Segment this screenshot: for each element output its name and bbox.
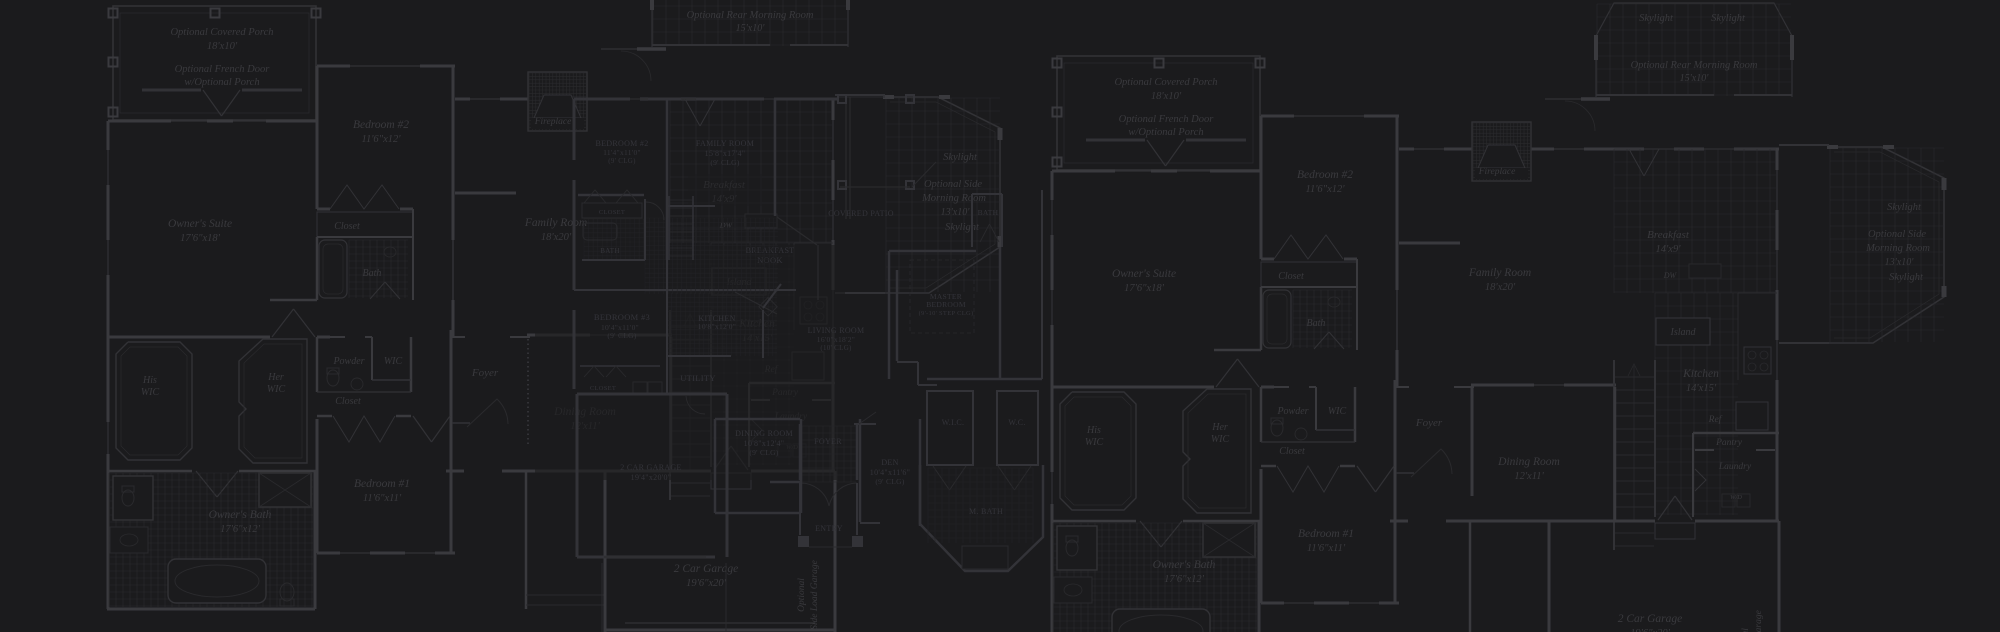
svg-text:Bath: Bath bbox=[1307, 318, 1326, 329]
svg-text:Laundry: Laundry bbox=[1718, 462, 1752, 472]
svg-text:WIC: WIC bbox=[267, 384, 286, 395]
svg-text:(10' CLG): (10' CLG) bbox=[820, 344, 852, 352]
svg-text:UTILITY: UTILITY bbox=[680, 373, 716, 383]
svg-text:11'4"x11'0": 11'4"x11'0" bbox=[603, 148, 641, 157]
svg-text:BEDROOM #2: BEDROOM #2 bbox=[595, 139, 648, 148]
svg-text:Her: Her bbox=[1211, 422, 1228, 433]
svg-text:DINING ROOM: DINING ROOM bbox=[735, 429, 793, 438]
svg-text:13'x10': 13'x10' bbox=[941, 207, 971, 218]
svg-text:Optional French Door: Optional French Door bbox=[1119, 114, 1215, 125]
svg-text:His: His bbox=[142, 375, 157, 386]
svg-text:(9' CLG): (9' CLG) bbox=[607, 331, 637, 340]
svg-text:Dining Room: Dining Room bbox=[1497, 456, 1560, 468]
svg-text:Powder: Powder bbox=[332, 356, 364, 367]
svg-text:13'x10': 13'x10' bbox=[1885, 257, 1915, 268]
svg-text:Powder: Powder bbox=[1276, 406, 1308, 417]
svg-text:15'x10': 15'x10' bbox=[736, 23, 766, 34]
svg-text:BEDROOM #3: BEDROOM #3 bbox=[594, 312, 650, 322]
svg-text:19'6"x20': 19'6"x20' bbox=[1630, 628, 1671, 632]
svg-text:10'8"x12'0": 10'8"x12'0" bbox=[698, 322, 736, 331]
svg-text:Ref: Ref bbox=[1708, 414, 1723, 425]
svg-text:(9' CLG): (9' CLG) bbox=[608, 157, 636, 165]
svg-text:Her: Her bbox=[267, 372, 284, 383]
svg-text:COVERED PATIO: COVERED PATIO bbox=[828, 209, 894, 218]
svg-text:Morning Room: Morning Room bbox=[1865, 243, 1930, 254]
svg-text:Optional Rear Morning Room: Optional Rear Morning Room bbox=[687, 10, 814, 21]
svg-text:Kitchen: Kitchen bbox=[1682, 368, 1719, 380]
svg-text:10'4"x11'6": 10'4"x11'6" bbox=[870, 468, 910, 477]
svg-text:Closet: Closet bbox=[1279, 446, 1305, 457]
svg-text:Skylight: Skylight bbox=[1711, 13, 1746, 24]
svg-text:11'6"x11': 11'6"x11' bbox=[363, 493, 402, 504]
svg-text:11'6"x12': 11'6"x12' bbox=[361, 134, 401, 145]
svg-text:Skylight: Skylight bbox=[1639, 13, 1674, 24]
svg-text:w/Optional Porch: w/Optional Porch bbox=[1128, 127, 1203, 138]
svg-text:17'6"x12': 17'6"x12' bbox=[220, 524, 261, 535]
svg-text:Fireplace: Fireplace bbox=[534, 117, 572, 127]
svg-text:Optional French Door: Optional French Door bbox=[175, 64, 271, 75]
svg-text:19'6"x20': 19'6"x20' bbox=[686, 578, 727, 589]
svg-text:W.I.C.: W.I.C. bbox=[942, 418, 965, 427]
svg-text:2 CAR GARAGE: 2 CAR GARAGE bbox=[620, 463, 681, 472]
svg-text:Pantry: Pantry bbox=[1715, 438, 1743, 448]
svg-text:WIC: WIC bbox=[1328, 406, 1347, 417]
svg-text:Side Load Garage: Side Load Garage bbox=[810, 560, 820, 630]
svg-text:w/Optional Porch: w/Optional Porch bbox=[184, 77, 259, 88]
svg-text:W.C.: W.C. bbox=[1008, 418, 1025, 427]
svg-text:Foyer: Foyer bbox=[1415, 417, 1443, 429]
svg-text:18'x10': 18'x10' bbox=[207, 41, 238, 52]
svg-text:2 Car Garage: 2 Car Garage bbox=[674, 563, 739, 575]
svg-text:Family Room: Family Room bbox=[524, 217, 587, 229]
svg-text:His: His bbox=[1086, 425, 1101, 436]
svg-text:14'x9': 14'x9' bbox=[1656, 244, 1682, 255]
svg-text:BEDROOM: BEDROOM bbox=[926, 300, 966, 309]
svg-text:(9' CLG): (9' CLG) bbox=[749, 448, 779, 457]
svg-text:FOYER: FOYER bbox=[814, 437, 842, 446]
svg-text:WIC: WIC bbox=[141, 387, 160, 398]
svg-text:WIC: WIC bbox=[384, 356, 403, 367]
svg-text:Foyer: Foyer bbox=[471, 367, 499, 379]
svg-text:(9'-10' STEP CLG): (9'-10' STEP CLG) bbox=[919, 310, 974, 317]
svg-text:Skylight: Skylight bbox=[1889, 272, 1924, 283]
svg-text:LIVING ROOM: LIVING ROOM bbox=[808, 326, 865, 335]
svg-text:Skylight: Skylight bbox=[1887, 202, 1922, 213]
svg-text:Skylight: Skylight bbox=[945, 222, 980, 233]
svg-text:Side Load Garage: Side Load Garage bbox=[1754, 610, 1764, 632]
svg-text:Owner's Bath: Owner's Bath bbox=[1153, 559, 1216, 571]
svg-text:15'8"x17'4": 15'8"x17'4" bbox=[705, 149, 746, 158]
svg-text:BATH: BATH bbox=[600, 247, 619, 255]
svg-text:18'x20': 18'x20' bbox=[541, 232, 572, 243]
svg-text:Breakfast: Breakfast bbox=[1647, 229, 1690, 241]
svg-text:Bedroom #1: Bedroom #1 bbox=[354, 478, 410, 490]
svg-text:Owner's Suite: Owner's Suite bbox=[1112, 268, 1176, 280]
svg-text:(9' CLG): (9' CLG) bbox=[710, 158, 740, 167]
svg-text:CLOSET: CLOSET bbox=[599, 209, 625, 216]
svg-text:Owner's Bath: Owner's Bath bbox=[209, 509, 272, 521]
svg-text:M. BATH: M. BATH bbox=[969, 507, 1003, 516]
svg-text:Family Room: Family Room bbox=[1468, 267, 1531, 279]
svg-text:Bath: Bath bbox=[363, 268, 382, 279]
svg-text:11'6"x11': 11'6"x11' bbox=[1307, 543, 1346, 554]
svg-text:17'6"x18': 17'6"x18' bbox=[180, 233, 221, 244]
svg-text:18'x10': 18'x10' bbox=[1151, 91, 1182, 102]
svg-text:12'x11': 12'x11' bbox=[1514, 471, 1544, 482]
svg-text:17'6"x18': 17'6"x18' bbox=[1124, 283, 1165, 294]
svg-text:Optional: Optional bbox=[1741, 628, 1751, 632]
svg-text:NOOK: NOOK bbox=[757, 255, 783, 265]
svg-text:Optional Covered Porch: Optional Covered Porch bbox=[170, 27, 273, 38]
svg-text:Closet: Closet bbox=[335, 396, 361, 407]
svg-text:DEN: DEN bbox=[881, 458, 898, 467]
svg-text:14'x15': 14'x15' bbox=[1686, 383, 1717, 394]
svg-text:Optional: Optional bbox=[797, 578, 807, 612]
svg-text:Optional Side: Optional Side bbox=[924, 179, 982, 190]
svg-text:11'6"x12': 11'6"x12' bbox=[1305, 184, 1345, 195]
svg-text:Bedroom #1: Bedroom #1 bbox=[1298, 528, 1354, 540]
svg-text:Closet: Closet bbox=[334, 221, 360, 232]
svg-text:W/D: W/D bbox=[1730, 494, 1742, 501]
svg-text:2 Car Garage: 2 Car Garage bbox=[1618, 613, 1683, 625]
svg-text:19'4"x20'0": 19'4"x20'0" bbox=[631, 473, 672, 482]
svg-text:(9' CLG): (9' CLG) bbox=[875, 477, 905, 486]
svg-text:16'0"x18'2": 16'0"x18'2" bbox=[817, 335, 855, 344]
svg-text:10'8"x12'4": 10'8"x12'4" bbox=[744, 439, 785, 448]
svg-text:15'x10': 15'x10' bbox=[1680, 73, 1710, 84]
svg-text:ENTRY: ENTRY bbox=[815, 524, 843, 533]
svg-text:Bedroom #2: Bedroom #2 bbox=[353, 119, 409, 131]
svg-text:Optional Side: Optional Side bbox=[1868, 229, 1926, 240]
svg-text:CLOSET: CLOSET bbox=[590, 385, 616, 392]
svg-text:Bedroom #2: Bedroom #2 bbox=[1297, 169, 1353, 181]
svg-text:BATH: BATH bbox=[978, 208, 999, 217]
svg-text:FAMILY ROOM: FAMILY ROOM bbox=[696, 139, 754, 148]
svg-text:17'6"x12': 17'6"x12' bbox=[1164, 574, 1205, 585]
svg-text:Island: Island bbox=[1670, 327, 1697, 338]
svg-text:WIC: WIC bbox=[1085, 437, 1104, 448]
svg-text:Fireplace: Fireplace bbox=[1478, 167, 1516, 177]
svg-text:Skylight: Skylight bbox=[943, 152, 978, 163]
svg-text:WIC: WIC bbox=[1211, 434, 1230, 445]
svg-text:Owner's Suite: Owner's Suite bbox=[168, 218, 232, 230]
svg-text:18'x20': 18'x20' bbox=[1485, 282, 1516, 293]
svg-text:Optional Rear Morning Room: Optional Rear Morning Room bbox=[1631, 60, 1758, 71]
svg-text:Optional Covered Porch: Optional Covered Porch bbox=[1114, 77, 1217, 88]
svg-text:Closet: Closet bbox=[1278, 271, 1304, 282]
svg-text:DW: DW bbox=[1663, 271, 1678, 280]
